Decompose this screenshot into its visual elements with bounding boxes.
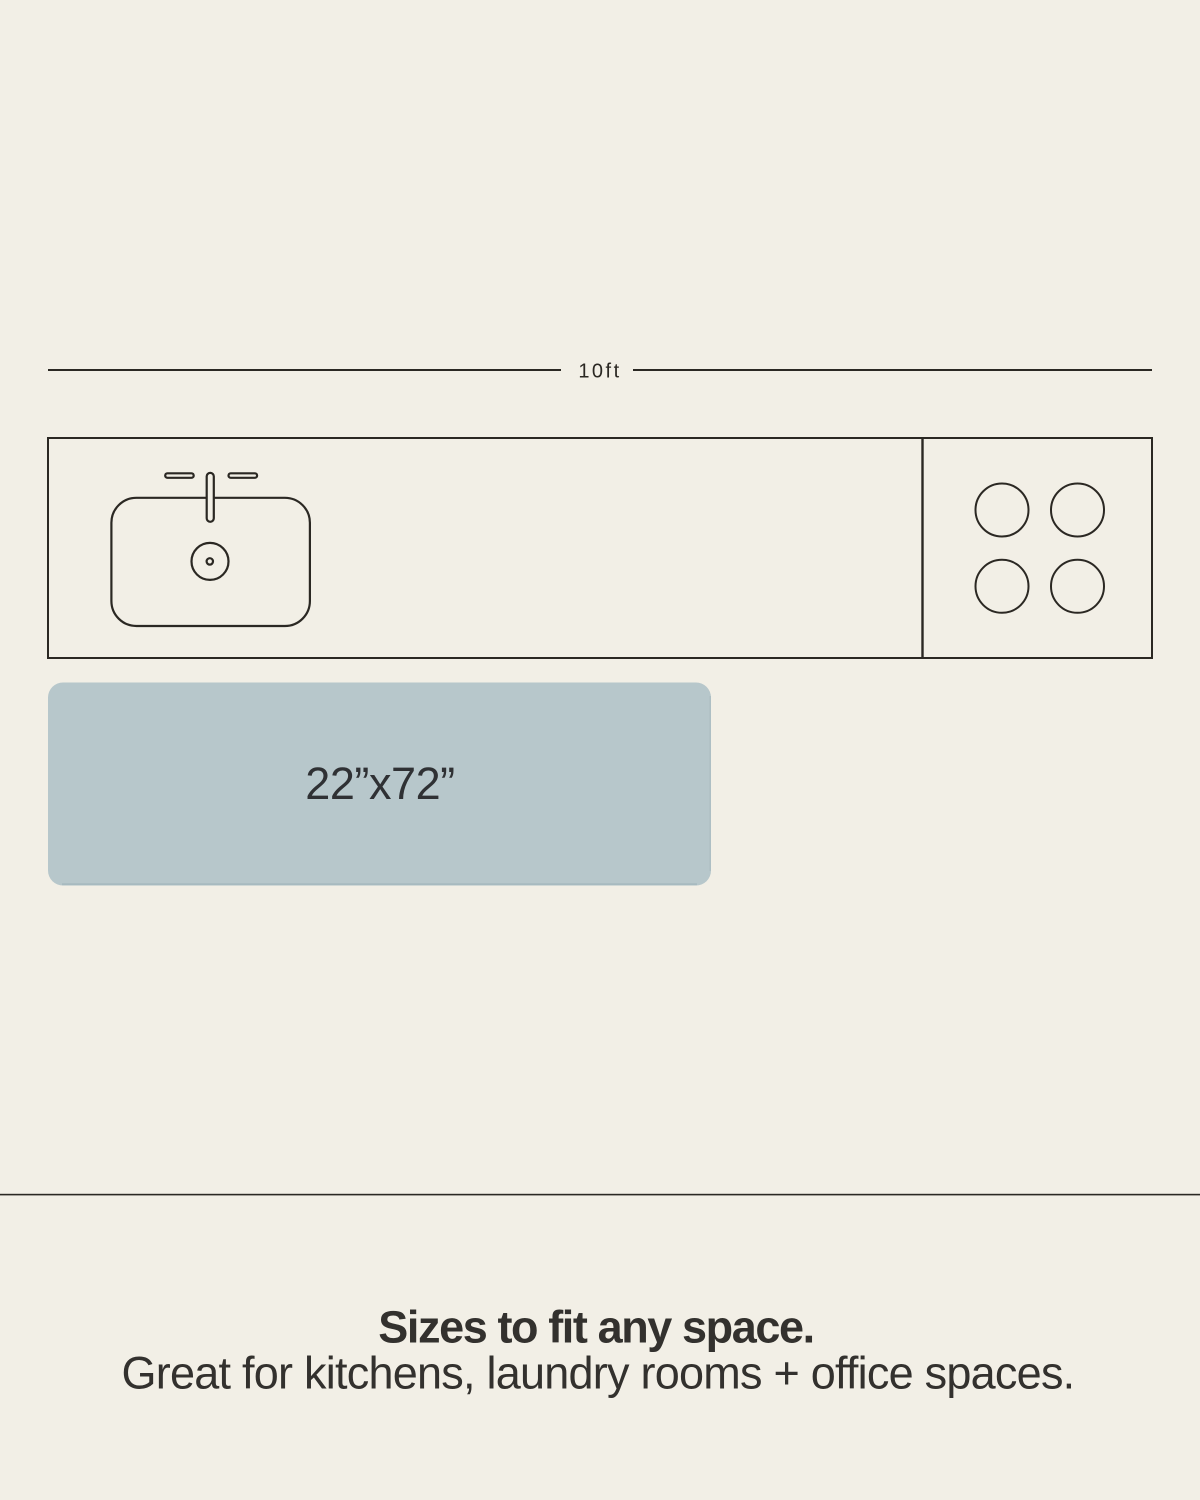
svg-text:Great for kitchens, laundry ro: Great for kitchens, laundry rooms + offi… — [122, 1347, 1075, 1398]
svg-text:10ft: 10ft — [578, 361, 621, 383]
svg-text:22”x72”: 22”x72” — [305, 758, 454, 809]
svg-text:Sizes to fit any space.: Sizes to fit any space. — [378, 1302, 813, 1353]
